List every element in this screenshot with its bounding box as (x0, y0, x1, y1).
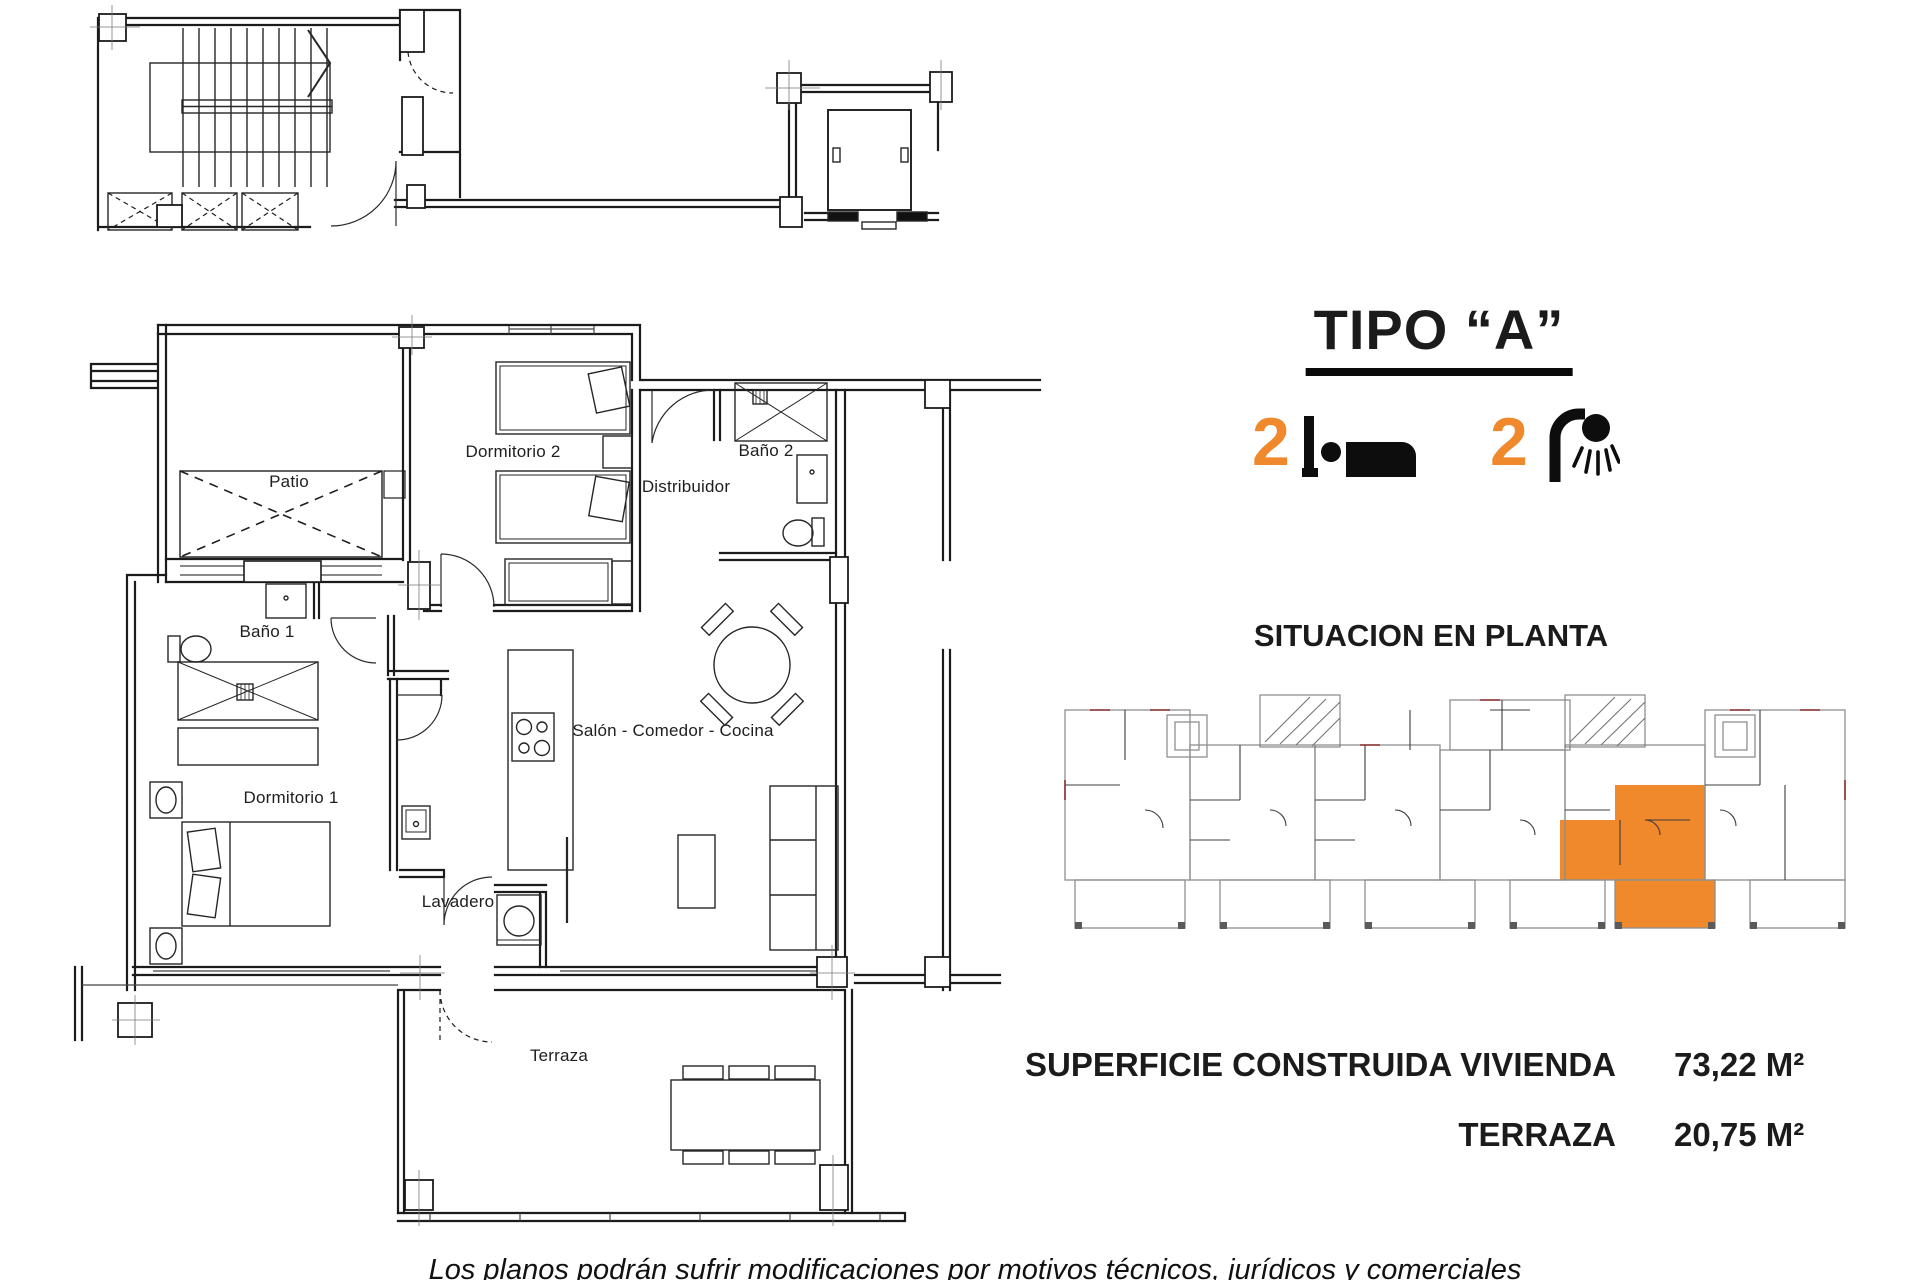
room-label-dormitorio1: Dormitorio 1 (244, 788, 339, 808)
bathroom-count: 2 (1490, 408, 1528, 476)
area-value-vivienda: 73,22 M² (1674, 1046, 1804, 1084)
room-label-terraza: Terraza (530, 1046, 588, 1066)
room-label-bano1: Baño 1 (239, 622, 294, 642)
room-label-salon: Salón - Comedor - Cocina (572, 721, 773, 741)
room-label-dormitorio2: Dormitorio 2 (466, 442, 561, 462)
area-label-vivienda: SUPERFICIE CONSTRUIDA VIVIENDA (1025, 1046, 1616, 1084)
floor-plan-drawing (0, 0, 1060, 1280)
room-label-distribuidor: Distribuidor (642, 477, 730, 497)
situacion-title: SITUACION EN PLANTA (1254, 618, 1608, 654)
disclaimer-text: Los planos podrán sufrir modificaciones … (429, 1254, 1522, 1280)
floorplan-sheet: Patio Dormitorio 2 Baño 2 Distribuidor B… (0, 0, 1920, 1280)
bedroom-count: 2 (1252, 408, 1290, 476)
bed-icon (1302, 414, 1422, 480)
shower-icon (1546, 404, 1620, 482)
area-label-terraza: TERRAZA (1458, 1116, 1616, 1154)
room-label-lavadero: Lavadero (422, 892, 495, 912)
situacion-mini-plan (1060, 690, 1850, 935)
area-value-terraza: 20,75 M² (1674, 1116, 1804, 1154)
room-label-patio: Patio (269, 472, 309, 492)
highlighted-unit-fill (1560, 785, 1715, 928)
page-title: TIPO “A” (1306, 297, 1573, 376)
room-label-bano2: Baño 2 (738, 441, 793, 461)
